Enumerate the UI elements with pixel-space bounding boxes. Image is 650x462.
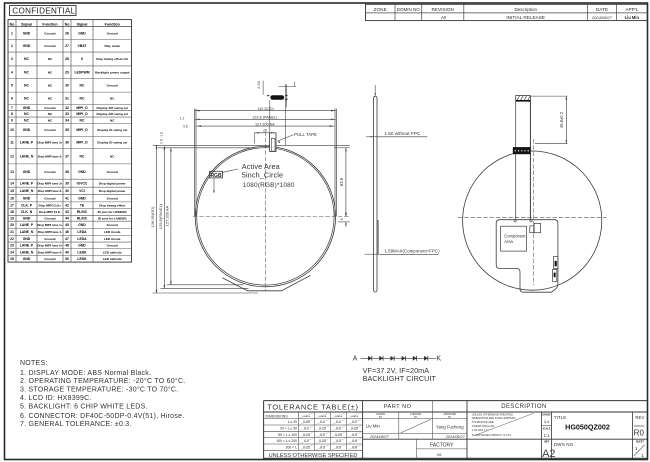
svg-text:1.2: 1.2 [180, 117, 185, 121]
svg-text:15: 15 [10, 189, 14, 193]
svg-text:DIMENSIONS: DIMENSIONS [266, 414, 289, 418]
svg-text:Disp timing effect: Disp timing effect [99, 203, 125, 207]
svg-text:2024/08/27: 2024/08/27 [591, 15, 613, 20]
svg-text:RL/NC: RL/NC [77, 217, 88, 221]
svg-text:GND: GND [23, 106, 31, 110]
svg-text:Disp MIPI lane 0+: Disp MIPI lane 0+ [37, 244, 63, 248]
svg-text:0.6: 0.6 [160, 139, 164, 144]
svg-text:Ground: Ground [44, 44, 55, 48]
svg-text:47: 47 [65, 237, 69, 241]
svg-text:22: 22 [10, 237, 14, 241]
svg-text:DESCRIPTION: DESCRIPTION [501, 404, 546, 410]
svg-text:GND: GND [23, 237, 31, 241]
svg-text:Disp timing offset ctrl: Disp timing offset ctrl [96, 57, 128, 61]
svg-text:LANE_N: LANE_N [20, 189, 34, 193]
svg-text:NC: NC [24, 119, 29, 123]
svg-text:R0: R0 [634, 429, 645, 438]
svg-text:NC: NC [48, 70, 53, 74]
svg-text:NC: NC [110, 97, 115, 101]
svg-text:GND: GND [23, 217, 31, 221]
svg-text:UNIT: UNIT [544, 442, 550, 444]
svg-text:A0: A0 [441, 15, 447, 20]
svg-text:NC: NC [80, 119, 85, 123]
svg-text:BY: BY [414, 417, 418, 419]
svg-text:12: 12 [10, 154, 14, 158]
svg-text:Disp MIPI CLK-: Disp MIPI CLK- [39, 210, 61, 214]
svg-text:Disp MIPI CLK+: Disp MIPI CLK+ [39, 203, 62, 207]
svg-text:27: 27 [65, 44, 69, 48]
svg-text:Description: Description [514, 7, 537, 12]
svg-text:20: 20 [10, 223, 14, 227]
svg-text:14: 14 [10, 181, 14, 185]
svg-text:CHECKED: CHECKED [410, 414, 422, 416]
svg-text:Disp MIPI lane 2+: Disp MIPI lane 2+ [37, 181, 63, 185]
svg-text:127.200 AA: 127.200 AA [255, 122, 275, 126]
svg-text:Liu Min: Liu Min [625, 15, 640, 20]
svg-text:1:1: 1:1 [544, 433, 551, 438]
svg-text:127.200 AA: 127.200 AA [165, 205, 170, 226]
svg-text:18: 18 [10, 210, 14, 214]
svg-text:CLK_N: CLK_N [21, 210, 33, 214]
svg-text:TE: TE [80, 203, 85, 207]
svg-text:A: A [353, 356, 358, 363]
svg-text:GND: GND [23, 31, 31, 35]
svg-text:Play mode: Play mode [105, 44, 121, 48]
svg-text:Signal: Signal [77, 22, 88, 26]
svg-text:17: 17 [10, 203, 14, 207]
svg-text:5: 5 [11, 84, 13, 88]
svg-text:Disp MIPI lane 1+: Disp MIPI lane 1+ [37, 223, 63, 227]
svg-text:NC: NC [24, 84, 29, 88]
svg-text:LED Anode: LED Anode [104, 230, 121, 234]
svg-text:LANE_N: LANE_N [20, 154, 34, 158]
svg-text:FACTORY: FACTORY [430, 443, 454, 449]
svg-text:L ≤ 20: L ≤ 20 [288, 420, 297, 424]
svg-text:Ground: Ground [107, 84, 118, 88]
svg-text:LED Anode: LED Anode [104, 237, 121, 241]
svg-text:129.8 (PANEL): 129.8 (PANEL) [252, 116, 278, 120]
svg-text:MIPI_D: MIPI_D [76, 141, 88, 145]
svg-text:VBAT: VBAT [78, 44, 88, 48]
svg-text:X: X [81, 57, 84, 61]
svg-text:LED cathode: LED cathode [103, 257, 122, 261]
svg-text:19: 19 [10, 217, 14, 221]
svg-text:SHEET: SHEET [636, 441, 645, 444]
svg-text:31: 31 [65, 97, 69, 101]
svg-text:5. BACKLIGHT: 6 CHIP WHITE LED: 5. BACKLIGHT: 6 CHIP WHITE LEDS. [20, 404, 148, 411]
svg-text:NC: NC [110, 119, 115, 123]
svg-text:Ground: Ground [107, 244, 118, 248]
svg-text:MIPI_D: MIPI_D [76, 106, 88, 110]
svg-text:41: 41 [65, 196, 69, 200]
svg-text:GRADE: GRADE [542, 414, 551, 417]
svg-text:REVISION: REVISION [431, 7, 453, 12]
svg-text:LANE_P: LANE_P [20, 244, 34, 248]
svg-text:2: 2 [11, 44, 13, 48]
svg-text:6. CONNECTOR: DF40C-50DP-0.4V(: 6. CONNECTOR: DF40C-50DP-0.4V(51), Hiros… [20, 413, 184, 420]
svg-text:SHARP EDGES APPROX. R 0.10: SHARP EDGES APPROX. R 0.10 [472, 433, 512, 437]
svg-text:BY: BY [379, 417, 383, 419]
svg-text:28: 28 [65, 57, 69, 61]
svg-text:NC: NC [24, 70, 29, 74]
svg-text:37: 37 [65, 154, 69, 158]
svg-text:50: 50 [65, 257, 69, 261]
svg-text:2.03: 2.03 [257, 81, 261, 88]
svg-text:39: 39 [65, 181, 69, 185]
svg-text:2024/08/27: 2024/08/27 [369, 435, 390, 439]
svg-text:INITIAL RELEASE: INITIAL RELEASE [506, 15, 545, 20]
svg-text:3: 3 [11, 57, 13, 61]
svg-text:NOTES:: NOTES: [20, 360, 48, 367]
svg-text:45: 45 [65, 223, 69, 227]
svg-text:NC: NC [24, 97, 29, 101]
svg-text:ID port for LANE(R): ID port for LANE(R) [98, 217, 127, 221]
svg-text:NC: NC [48, 112, 53, 116]
svg-text:LEDA: LEDA [77, 230, 87, 234]
svg-text:REV: REV [635, 415, 644, 420]
svg-text:NC: NC [24, 112, 29, 116]
svg-text:GND: GND [23, 44, 31, 48]
svg-text:NC: NC [110, 154, 115, 158]
svg-text:10: 10 [10, 128, 14, 132]
svg-text:RGB: RGB [210, 173, 222, 179]
svg-text:33: 33 [65, 112, 69, 116]
svg-text:Ground: Ground [44, 128, 55, 132]
svg-text:Display diff swing sel: Display diff swing sel [97, 112, 129, 116]
svg-text:1: 1 [641, 453, 644, 459]
svg-text:4. LCD ID: HX8399C.: 4. LCD ID: HX8399C. [20, 395, 92, 402]
svg-text:GND: GND [23, 196, 31, 200]
svg-text:5inch_Circle: 5inch_Circle [242, 171, 283, 180]
svg-text:GND: GND [78, 170, 86, 174]
svg-text:Display IO swing sel: Display IO swing sel [97, 128, 127, 132]
svg-text:11: 11 [10, 141, 14, 145]
svg-text:APPROVED: APPROVED [443, 413, 456, 416]
svg-text:LEDK: LEDK [77, 257, 87, 261]
svg-text:23: 23 [10, 244, 14, 248]
svg-text:NC: NC [48, 84, 53, 88]
svg-text:UNLESS OTHERWISE SPECIFIED: UNLESS OTHERWISE SPECIFIED [269, 453, 358, 459]
svg-text:Disp MIPI lane 0-: Disp MIPI lane 0- [38, 250, 63, 254]
svg-text:Display diff swing sel: Display diff swing sel [97, 106, 129, 110]
svg-text:LEDK: LEDK [77, 250, 87, 254]
svg-text:40: 40 [65, 189, 69, 193]
svg-text:9: 9 [11, 119, 13, 123]
svg-text:DOMIN NO: DOMIN NO [397, 7, 420, 12]
svg-text:LANE_N: LANE_N [20, 250, 34, 254]
svg-text:136.55(OD): 136.55(OD) [150, 206, 155, 228]
svg-text:Disp MIPI lane 3+: Disp MIPI lane 3+ [37, 141, 63, 145]
svg-text:CLK_P: CLK_P [21, 203, 33, 207]
svg-text:BACKLIGHT CIRCUIT: BACKLIGHT CIRCUIT [363, 374, 437, 383]
svg-text:1.2: 1.2 [160, 132, 164, 137]
svg-text:Yang Fucheng: Yang Fucheng [436, 424, 464, 429]
svg-text:LEDPWM: LEDPWM [74, 70, 89, 74]
svg-text:NC: NC [80, 84, 85, 88]
svg-text:1. DISPLAY MODE: ABS Normal Bl: 1. DISPLAY MODE: ABS Normal Black. [20, 370, 151, 377]
svg-text:13: 13 [10, 170, 14, 174]
svg-text:GND: GND [78, 196, 86, 200]
svg-text:100 < L ≤ 200: 100 < L ≤ 200 [276, 439, 297, 443]
svg-text:GND: GND [23, 257, 31, 261]
svg-text:LANE_P: LANE_P [20, 141, 34, 145]
svg-text:NC: NC [24, 57, 29, 61]
svg-text:PULL TAPE: PULL TAPE [294, 132, 317, 137]
svg-text:21: 21 [10, 230, 14, 234]
svg-text:GND: GND [78, 31, 86, 35]
svg-text:Ground: Ground [44, 196, 55, 200]
svg-text:Ground: Ground [107, 196, 118, 200]
svg-text:1080(RGB)*1080: 1080(RGB)*1080 [243, 182, 295, 189]
svg-text:LANE_P: LANE_P [20, 223, 34, 227]
svg-text:48: 48 [65, 244, 69, 248]
svg-text:RL/NC: RL/NC [77, 210, 88, 214]
svg-text:MIPI_D: MIPI_D [76, 128, 88, 132]
svg-text:Disp digital power: Disp digital power [99, 189, 126, 193]
svg-text:LANE_P: LANE_P [20, 181, 34, 185]
svg-text:SCALE: SCALE [543, 428, 551, 431]
svg-text:Disp MIPI lane 1-: Disp MIPI lane 1- [38, 230, 63, 234]
svg-text:DATE: DATE [596, 7, 608, 12]
svg-text:Liu Min: Liu Min [366, 423, 381, 428]
svg-text:DRAWN: DRAWN [376, 413, 385, 416]
svg-text:GND: GND [23, 170, 31, 174]
svg-text:5: 5 [340, 218, 344, 220]
svg-text:APP'L: APP'L [625, 7, 638, 12]
svg-text:NC: NC [48, 57, 53, 61]
svg-text:8: 8 [11, 112, 13, 116]
svg-text:A2: A2 [542, 448, 555, 460]
svg-text:46: 46 [65, 230, 69, 234]
svg-text:2. OPERATING TEMPERATURE: -20°: 2. OPERATING TEMPERATURE: -20°C TO 60°C. [20, 377, 186, 385]
svg-text:Component: Component [504, 233, 526, 238]
svg-text:0.6: 0.6 [183, 124, 188, 128]
svg-text:3-4: 3-4 [544, 420, 550, 424]
svg-text:30: 30 [65, 84, 69, 88]
svg-text:1: 1 [11, 31, 13, 35]
svg-text:NC: NC [80, 97, 85, 101]
svg-text:Active Area: Active Area [242, 162, 281, 171]
svg-text:43: 43 [65, 210, 69, 214]
svg-text:ID port for HX8399C: ID port for HX8399C [98, 210, 128, 214]
svg-text:29: 29 [65, 70, 69, 74]
svg-text:45.8±0.2: 45.8±0.2 [559, 111, 564, 128]
svg-text:26: 26 [65, 31, 69, 35]
svg-text:7: 7 [11, 106, 13, 110]
svg-text:TOLERANCE TABLE(±): TOLERANCE TABLE(±) [267, 402, 358, 411]
svg-text:LED cathode: LED cathode [103, 250, 122, 254]
svg-text:GND: GND [23, 128, 31, 132]
svg-text:DWG NO: DWG NO [554, 442, 574, 447]
svg-text:GND: GND [78, 244, 86, 248]
svg-text:1.59MAX(Component+FPC): 1.59MAX(Component+FPC) [385, 249, 441, 254]
svg-text:LANE_N: LANE_N [20, 230, 34, 234]
svg-text:Ground: Ground [44, 106, 55, 110]
svg-text:Ground: Ground [107, 170, 118, 174]
svg-text:1: 1 [635, 446, 638, 452]
svg-text:LINEAR ANGULAR: LINEAR ANGULAR [472, 424, 495, 428]
svg-text:ZONE: ZONE [374, 7, 387, 12]
svg-text:NC: NC [48, 119, 53, 123]
svg-text:DIMENSIONS ARE IN MILLIMETERS: DIMENSIONS ARE IN MILLIMETERS [472, 416, 516, 420]
svg-text:UNLESS OTHERWISE SPECIFIED: UNLESS OTHERWISE SPECIFIED [472, 413, 513, 417]
svg-text:36: 36 [65, 141, 69, 145]
svg-text:BY: BY [448, 417, 452, 419]
svg-text:2024/08/27: 2024/08/27 [445, 435, 466, 439]
svg-text:Function: Function [42, 22, 57, 26]
svg-text:GND: GND [78, 223, 86, 227]
svg-text:200 < L: 200 < L [286, 445, 298, 449]
svg-text:PART NO: PART NO [384, 404, 412, 410]
svg-text:Area: Area [504, 239, 513, 244]
svg-text:HG050QZ002: HG050QZ002 [565, 423, 610, 432]
svg-text:Ground: Ground [44, 237, 55, 241]
svg-text:IOVCC: IOVCC [77, 181, 88, 185]
svg-text:7. GENERAL TOLERANCE: ±0.3.: 7. GENERAL TOLERANCE: ±0.3. [20, 421, 132, 428]
svg-text:4: 4 [11, 70, 13, 74]
svg-text:Ground: Ground [44, 257, 55, 261]
svg-text:TITLE: TITLE [554, 415, 567, 420]
svg-text:Ground: Ground [44, 217, 55, 221]
svg-text:Signal: Signal [21, 22, 32, 26]
svg-text:TOLERANCE ARE:: TOLERANCE ARE: [472, 420, 495, 424]
svg-text:24: 24 [10, 250, 14, 254]
svg-text:20 < L ≤ 50: 20 < L ≤ 50 [280, 426, 297, 430]
svg-text:44: 44 [65, 217, 69, 221]
svg-text:129.8(PANEL): 129.8(PANEL) [158, 203, 163, 229]
svg-text:20: 20 [263, 129, 267, 133]
svg-text:LEDA: LEDA [77, 237, 87, 241]
svg-text:63.6: 63.6 [339, 177, 344, 186]
svg-text:NC: NC [48, 97, 53, 101]
svg-text:Display IO swing sel: Display IO swing sel [97, 141, 127, 145]
svg-text:1.50 without FPC: 1.50 without FPC [384, 131, 421, 136]
svg-text:Backlight power output: Backlight power output [95, 70, 129, 74]
svg-text:K: K [436, 356, 441, 363]
svg-text:25: 25 [10, 257, 14, 261]
svg-text:Ground: Ground [107, 31, 118, 35]
svg-text:130.2(OD): 130.2(OD) [257, 107, 273, 111]
svg-text:Ground: Ground [107, 223, 118, 227]
svg-text:Disp MIPI lane 3-: Disp MIPI lane 3- [38, 154, 63, 158]
svg-text:Disp MIPI lane 2-: Disp MIPI lane 2- [38, 189, 63, 193]
svg-text:X6: X6 [437, 452, 443, 457]
svg-text:No: No [65, 22, 71, 26]
svg-text:Ground: Ground [44, 31, 55, 35]
svg-text:49: 49 [65, 250, 69, 254]
svg-text:34: 34 [65, 119, 69, 123]
svg-text:VCI: VCI [79, 189, 85, 193]
svg-text:35: 35 [65, 128, 69, 132]
svg-text:38: 38 [65, 170, 69, 174]
svg-text:Function: Function [105, 22, 120, 26]
svg-text:No: No [10, 22, 16, 26]
svg-text:6: 6 [11, 97, 13, 101]
svg-text:42: 42 [65, 203, 69, 207]
svg-text:Disp digital power: Disp digital power [99, 181, 126, 185]
svg-text:Ground: Ground [44, 170, 55, 174]
svg-text:MIPI_D: MIPI_D [76, 112, 88, 116]
svg-text:50 < L ≤ 100: 50 < L ≤ 100 [278, 433, 297, 437]
svg-text:NC: NC [80, 154, 85, 158]
svg-text:32: 32 [65, 106, 69, 110]
svg-text:CONFIDENTIAL: CONFIDENTIAL [12, 7, 75, 16]
svg-text:3. STORAGE TEMPERATURE: -30°C: 3. STORAGE TEMPERATURE: -30°C TO 70°C. [20, 385, 178, 393]
svg-text:16: 16 [10, 196, 14, 200]
